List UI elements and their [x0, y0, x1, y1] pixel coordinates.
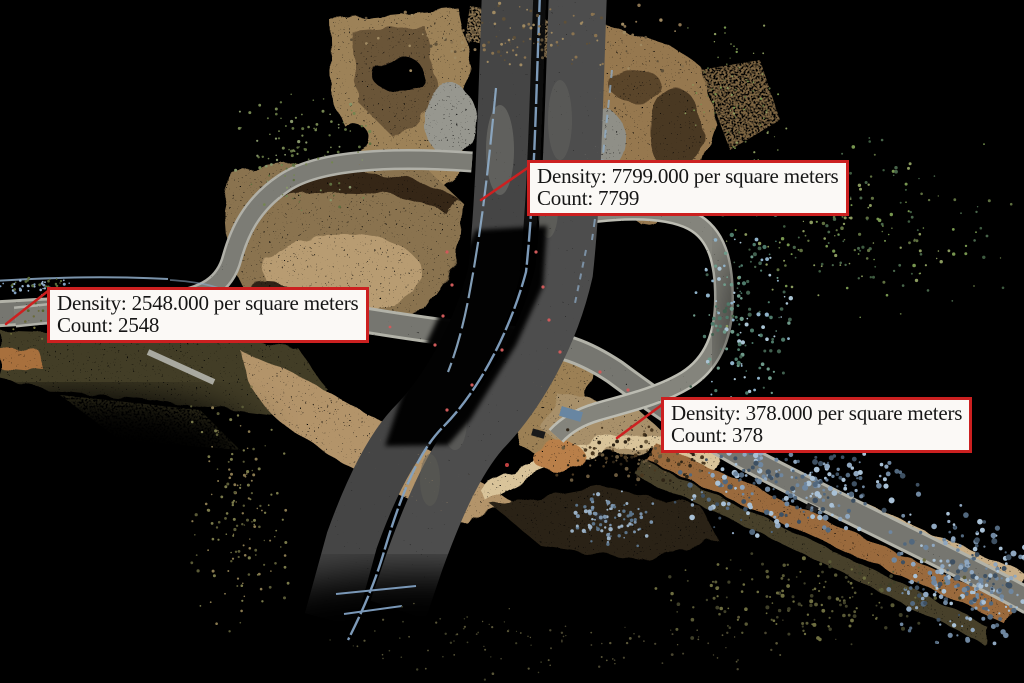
point-cloud-viewport[interactable]: Density: 7799.000 per square meters Coun… [0, 0, 1024, 683]
annotation-density-text: Density: 2548.000 per square meters [57, 292, 359, 314]
annotation-count-text: Count: 378 [671, 424, 962, 446]
annotation-density-text: Density: 7799.000 per square meters [537, 165, 839, 187]
annotation-density-2548[interactable]: Density: 2548.000 per square meters Coun… [47, 287, 369, 343]
annotation-density-7799[interactable]: Density: 7799.000 per square meters Coun… [527, 160, 849, 216]
annotation-density-378[interactable]: Density: 378.000 per square meters Count… [661, 397, 972, 453]
annotation-density-text: Density: 378.000 per square meters [671, 402, 962, 424]
annotation-count-text: Count: 2548 [57, 314, 359, 336]
annotation-count-text: Count: 7799 [537, 187, 839, 209]
